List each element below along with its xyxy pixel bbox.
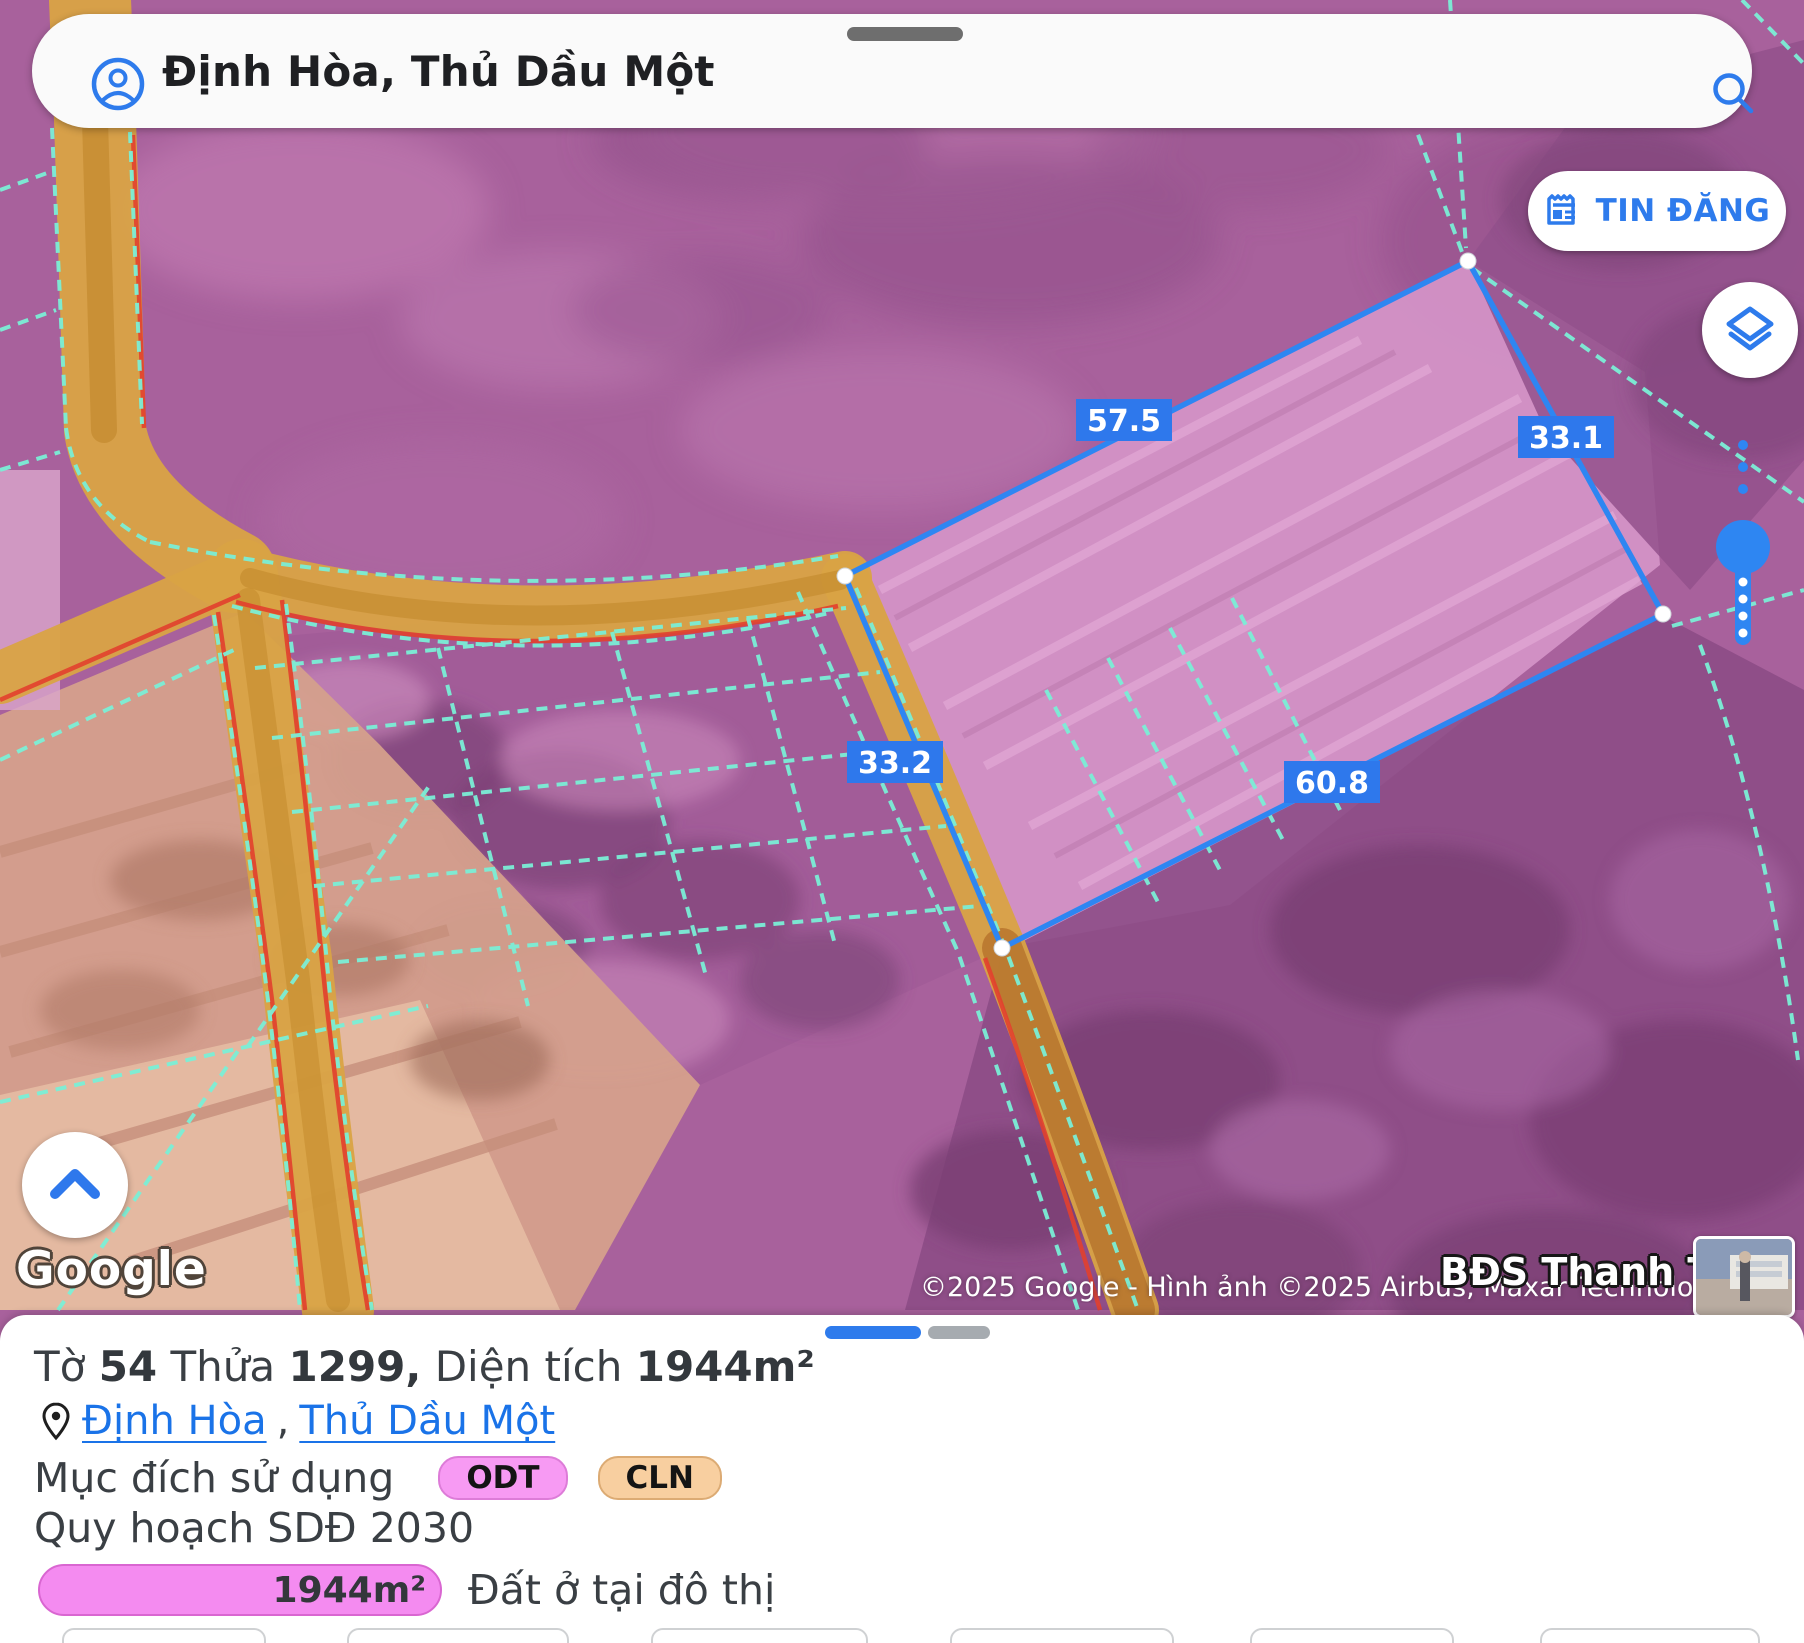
- planning-zone-name: Đất ở tại đô thị: [468, 1566, 775, 1614]
- vertex-dot[interactable]: [1460, 253, 1476, 269]
- ward-link[interactable]: Định Hòa: [82, 1398, 267, 1444]
- account-icon[interactable]: [90, 56, 146, 112]
- tin-dang-label: TIN ĐĂNG: [1596, 193, 1771, 229]
- vertex-dot[interactable]: [1655, 606, 1671, 622]
- land-map-app: 57.5 33.1 33.2 60.8: [0, 0, 1804, 1643]
- collapse-button[interactable]: [22, 1132, 128, 1238]
- land-use-badge-cln[interactable]: CLN: [598, 1456, 722, 1500]
- legend-chip[interactable]: [1250, 1628, 1454, 1643]
- legend-chip[interactable]: [62, 1628, 266, 1643]
- legend-chip[interactable]: [1540, 1628, 1760, 1643]
- legend-chip[interactable]: [950, 1628, 1174, 1643]
- city-link[interactable]: Thủ Dầu Một: [299, 1398, 555, 1444]
- tin-dang-button[interactable]: TIN ĐĂNG: [1528, 171, 1786, 251]
- listings-feed-icon: [1544, 191, 1584, 231]
- search-input[interactable]: Định Hòa, Thủ Dầu Một: [162, 47, 715, 96]
- measure-label-33-2: 33.2: [858, 746, 932, 781]
- measure-label-60-8: 60.8: [1295, 766, 1369, 801]
- chevron-up-icon: [22, 1132, 128, 1238]
- planning-area-value: 1944m²: [273, 1570, 426, 1611]
- layers-icon: [1717, 297, 1783, 363]
- pager-indicator[interactable]: [928, 1326, 990, 1339]
- parcel-title: Tờ 54 Thửa 1299, Diện tích 1944m²: [34, 1342, 815, 1391]
- land-use-badge-odt[interactable]: ODT: [438, 1456, 567, 1500]
- vertex-dot[interactable]: [837, 568, 853, 584]
- measure-label-33-1: 33.1: [1529, 421, 1603, 456]
- sheet-drag-handle[interactable]: [847, 27, 963, 41]
- parcel-location: Định Hòa, Thủ Dầu Một: [40, 1398, 555, 1444]
- pager-indicator-active[interactable]: [825, 1326, 921, 1339]
- vertex-dot[interactable]: [994, 940, 1010, 956]
- search-icon[interactable]: [1710, 70, 1756, 116]
- land-use-row: Mục đích sử dụng ODT CLN: [34, 1454, 722, 1502]
- google-logo: Google: [16, 1242, 207, 1297]
- legend-chip[interactable]: [347, 1628, 569, 1643]
- land-use-label: Mục đích sử dụng: [34, 1454, 394, 1502]
- planning-label: Quy hoạch SDĐ 2030: [34, 1504, 474, 1552]
- place-pin-icon: [40, 1401, 72, 1441]
- measure-label-57-5: 57.5: [1087, 404, 1161, 439]
- layers-button[interactable]: [1702, 282, 1798, 378]
- legend-chip[interactable]: [651, 1628, 868, 1643]
- planning-area-bar: 1944m²: [38, 1564, 442, 1616]
- agency-photo-thumbnail: [1693, 1236, 1795, 1318]
